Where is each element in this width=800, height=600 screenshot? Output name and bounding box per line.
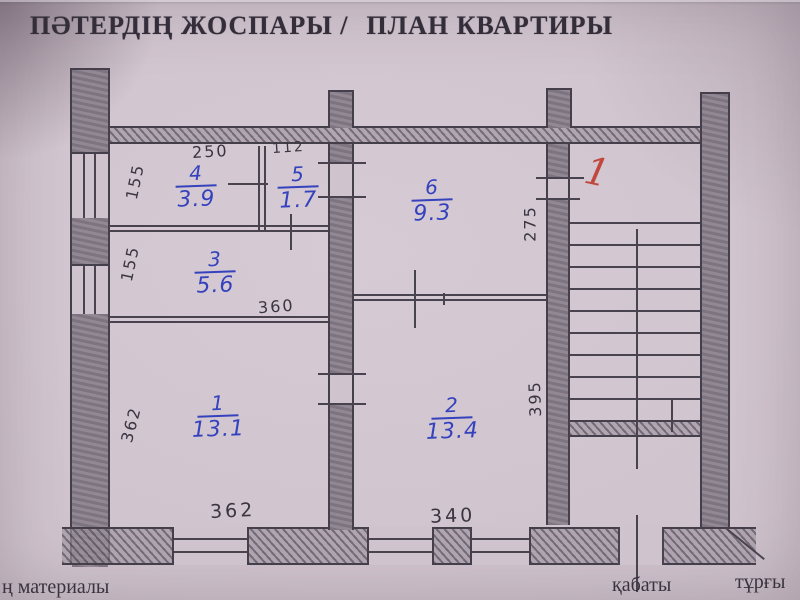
room-label-3: 3 5.6: [194, 247, 236, 299]
stair-tread: [570, 398, 700, 400]
door-tick: [318, 373, 366, 375]
entrance-opening: [618, 527, 664, 565]
footer-floor-label: қабаты: [612, 574, 671, 597]
stair-tick: [671, 400, 673, 432]
page-title: ПӘТЕРДІҢ ЖОСПАРЫ /ПЛАН КВАРТИРЫ: [30, 11, 770, 41]
stair-centerline: [636, 229, 638, 469]
wall-left-segment: [72, 218, 108, 264]
partition-room4-room5: [258, 146, 266, 230]
wall-central: [328, 144, 354, 530]
wall-central-segment: [330, 403, 352, 530]
window-bottom-2: [367, 527, 434, 565]
room-5-area: 1.7: [279, 187, 318, 214]
scanned-floor-plan-page: ПӘТЕРДІҢ ЖОСПАРЫ /ПЛАН КВАРТИРЫ: [0, 0, 800, 600]
dim-label-395: 395: [525, 373, 546, 424]
stair-tread: [570, 332, 700, 334]
room-label-2: 2 13.4: [425, 393, 480, 446]
window-left-2: [72, 264, 108, 318]
window-bottom-3: [470, 527, 531, 565]
footer-materials-label: ң материалы: [2, 576, 109, 599]
room-6-number: 6: [411, 175, 453, 201]
room-3-area: 5.6: [196, 272, 235, 299]
door-tick: [536, 177, 584, 179]
wall-stairwell: [546, 144, 570, 525]
room-3-number: 3: [194, 247, 236, 273]
room-6-area: 9.3: [413, 200, 452, 227]
wall-left-segment: [72, 70, 108, 152]
stair-tread: [570, 244, 700, 246]
wall-stairwell-segment: [548, 144, 568, 177]
door-tick-small: [443, 293, 445, 305]
door-tick-room6-room2: [414, 270, 416, 328]
stair-tread: [570, 288, 700, 290]
dim-label-155-room3: 155: [116, 237, 145, 290]
footer-residence-label: тұрғы: [735, 571, 785, 594]
wall-central-segment: [330, 196, 352, 373]
room-label-1: 1 13.1: [191, 391, 246, 444]
stair-tread: [570, 310, 700, 312]
partition-room6-room2: [354, 294, 546, 301]
wall-left: [70, 68, 110, 565]
stair-tread: [570, 266, 700, 268]
door-opening-central-bottom: [330, 373, 352, 403]
room-label-6: 6 9.3: [411, 175, 453, 227]
room-1-number: 1: [197, 391, 239, 417]
partition-room3-room1: [110, 316, 328, 323]
stair-tread: [570, 376, 700, 378]
dim-label-340: 340: [430, 504, 476, 528]
wall-right: [700, 92, 730, 527]
window-bottom-1: [172, 527, 249, 565]
partition-room45-room3: [110, 225, 328, 232]
dim-label-362-bottom: 362: [209, 499, 255, 523]
door-tick: [318, 196, 366, 198]
door-tick-room4-room5: [228, 183, 268, 185]
dim-label-360: 360: [257, 296, 295, 318]
door-tick: [318, 162, 366, 164]
stairs: [570, 215, 700, 527]
room-1-area: 13.1: [192, 416, 246, 444]
page-title-kazakh: ПӘТЕРДІҢ ЖОСПАРЫ /: [30, 11, 348, 40]
dim-label-362-left: 362: [115, 398, 146, 451]
dim-label-112: 112: [271, 139, 305, 157]
door-tick-room5: [290, 214, 292, 250]
door-tick: [318, 403, 366, 405]
dim-label-250: 250: [192, 141, 229, 162]
floor-number-mark: 1: [581, 151, 613, 193]
room-label-4: 4 3.9: [175, 161, 217, 213]
page-title-russian: ПЛАН КВАРТИРЫ: [366, 11, 613, 40]
room-5-number: 5: [277, 162, 319, 188]
paper-crease: [0, 0, 800, 2]
room-label-5: 5 1.7: [277, 162, 319, 214]
wall-bottom: [62, 527, 756, 565]
room-2-number: 2: [431, 393, 473, 419]
wall-stair-top-stub: [546, 88, 572, 128]
door-opening-stairwell: [548, 177, 568, 198]
dim-label-155-room4: 155: [121, 155, 150, 208]
wall-central-segment: [330, 144, 352, 162]
stair-tread: [570, 354, 700, 356]
stair-tread: [570, 222, 700, 224]
room-4-area: 3.9: [177, 186, 216, 213]
room-4-number: 4: [175, 161, 217, 187]
dim-label-275: 275: [521, 199, 540, 249]
door-tick: [536, 198, 580, 200]
window-left-1: [72, 152, 108, 222]
room-2-area: 13.4: [426, 418, 480, 446]
door-opening-central-top: [330, 162, 352, 196]
wall-top: [110, 126, 702, 144]
wall-central-top-stub: [328, 90, 354, 128]
stair-landing: [570, 420, 700, 437]
wall-stairwell-segment: [548, 198, 568, 525]
